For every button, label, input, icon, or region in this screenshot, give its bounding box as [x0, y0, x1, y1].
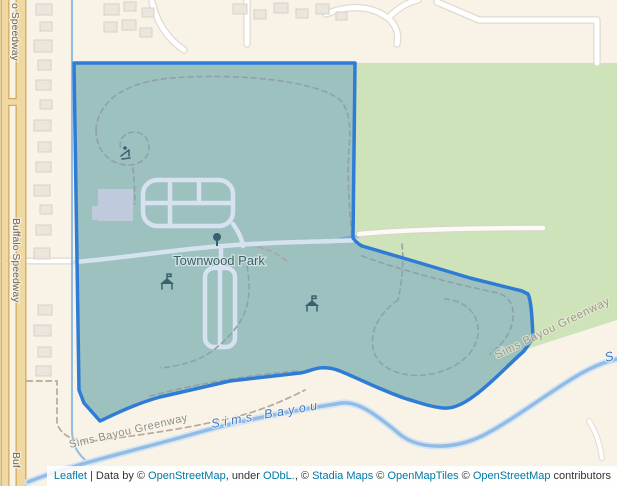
openmaptiles-link[interactable]: OpenMapTiles — [387, 470, 458, 482]
attribution-text: , © — [295, 470, 312, 482]
leaflet-map[interactable]: Townwood Park o Speedway Buffalo Speedwa… — [0, 0, 617, 486]
buffalo-speedway-label-top: o Speedway — [9, 3, 21, 62]
openstreetmap-link[interactable]: OpenStreetMap — [473, 470, 551, 482]
odbl-link[interactable]: ODbL. — [263, 470, 295, 482]
attribution-text: © — [459, 470, 473, 482]
attribution-text: contributors — [550, 470, 611, 482]
map-canvas[interactable]: Townwood Park o Speedway Buffalo Speedwa… — [0, 0, 617, 486]
attribution-text: , under — [226, 470, 263, 482]
leaflet-link[interactable]: Leaflet — [54, 470, 87, 482]
stadia-maps-link[interactable]: Stadia Maps — [312, 470, 373, 482]
townwood-park-label: Townwood Park — [173, 253, 265, 268]
openstreetmap-link[interactable]: OpenStreetMap — [148, 470, 226, 482]
attribution-text: © — [373, 470, 387, 482]
buffalo-speedway-label: Buffalo Speedway — [10, 218, 22, 303]
attribution-bar: Leaflet | Data by © OpenStreetMap, under… — [47, 466, 617, 486]
buffalo-speedway-label-bottom: Buf — [10, 452, 22, 468]
attribution-text: | Data by © — [87, 470, 148, 482]
